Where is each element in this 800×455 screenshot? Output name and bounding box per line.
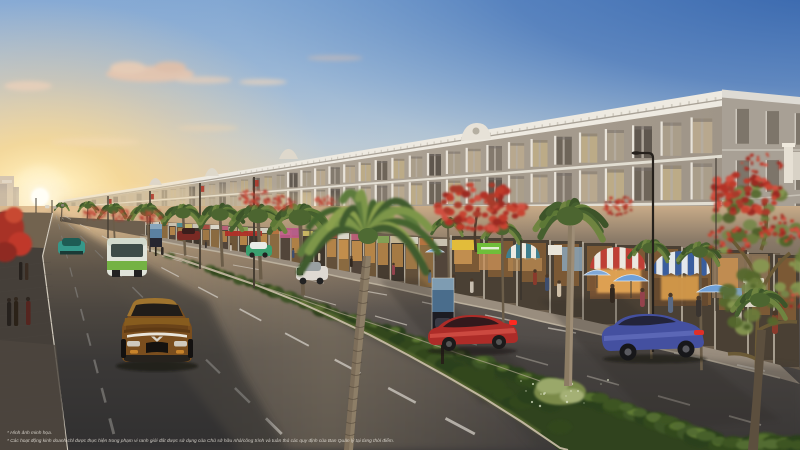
- svg-text:* Các hoạt động kinh doanh chỉ: * Các hoạt động kinh doanh chỉ được thực…: [7, 437, 394, 444]
- svg-text:* Hình ảnh minh họa.: * Hình ảnh minh họa.: [7, 429, 52, 436]
